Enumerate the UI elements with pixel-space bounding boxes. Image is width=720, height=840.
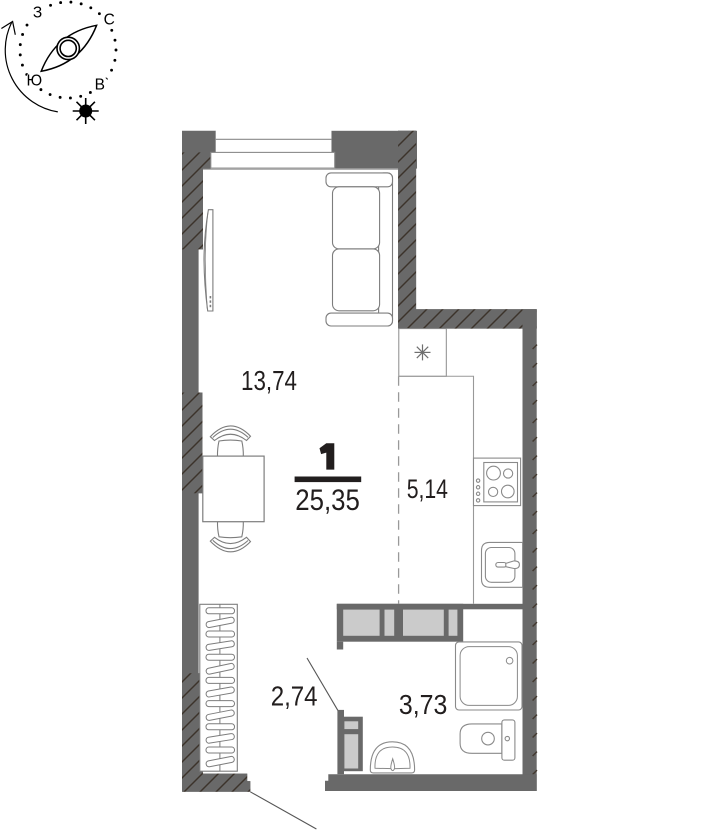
svg-text:13,74: 13,74 <box>241 365 297 396</box>
svg-text:В: В <box>95 76 105 93</box>
svg-text:5,14: 5,14 <box>407 474 448 504</box>
svg-text:Ю: Ю <box>26 73 42 90</box>
svg-text:З: З <box>33 5 42 22</box>
svg-text:2,74: 2,74 <box>271 680 318 711</box>
svg-text:3,73: 3,73 <box>399 689 447 720</box>
svg-text:25,35: 25,35 <box>295 484 360 517</box>
svg-text:С: С <box>104 11 115 28</box>
